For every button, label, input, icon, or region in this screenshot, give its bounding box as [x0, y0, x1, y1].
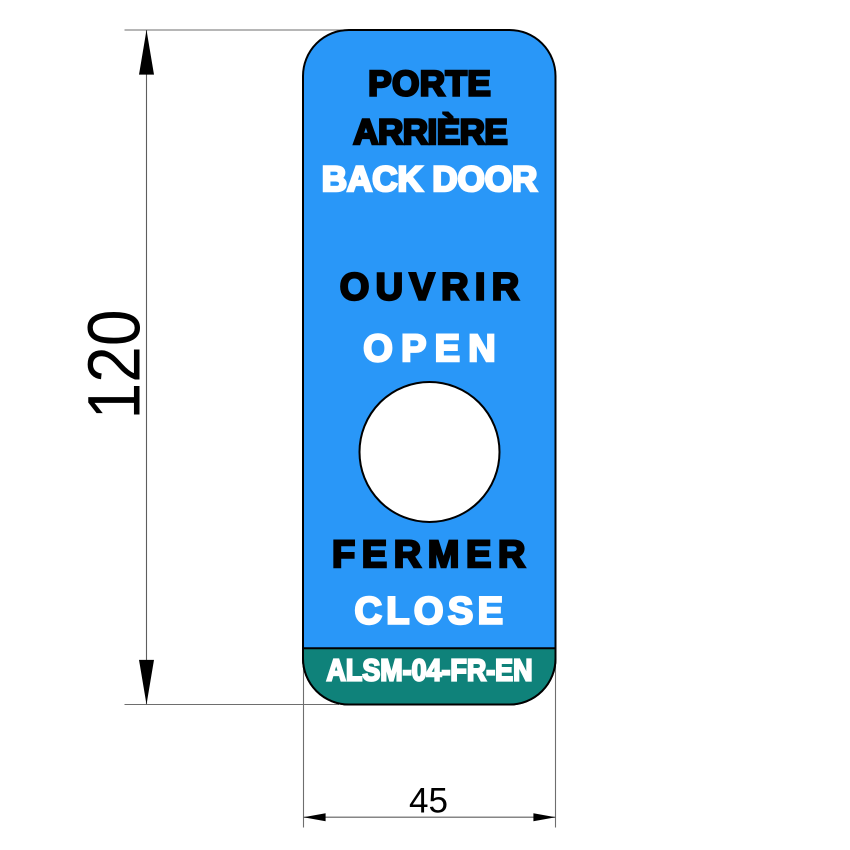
- svg-text:OUVRIR: OUVRIR: [340, 267, 520, 309]
- svg-text:CLOSE: CLOSE: [354, 590, 503, 632]
- svg-text:PORTE: PORTE: [368, 65, 491, 104]
- svg-text:ALSM-04-FR-EN: ALSM-04-FR-EN: [327, 653, 533, 688]
- svg-text:45: 45: [409, 782, 448, 821]
- svg-text:120: 120: [73, 310, 156, 420]
- svg-text:BACK DOOR: BACK DOOR: [322, 160, 538, 199]
- svg-text:ARRIÈRE: ARRIÈRE: [353, 112, 508, 152]
